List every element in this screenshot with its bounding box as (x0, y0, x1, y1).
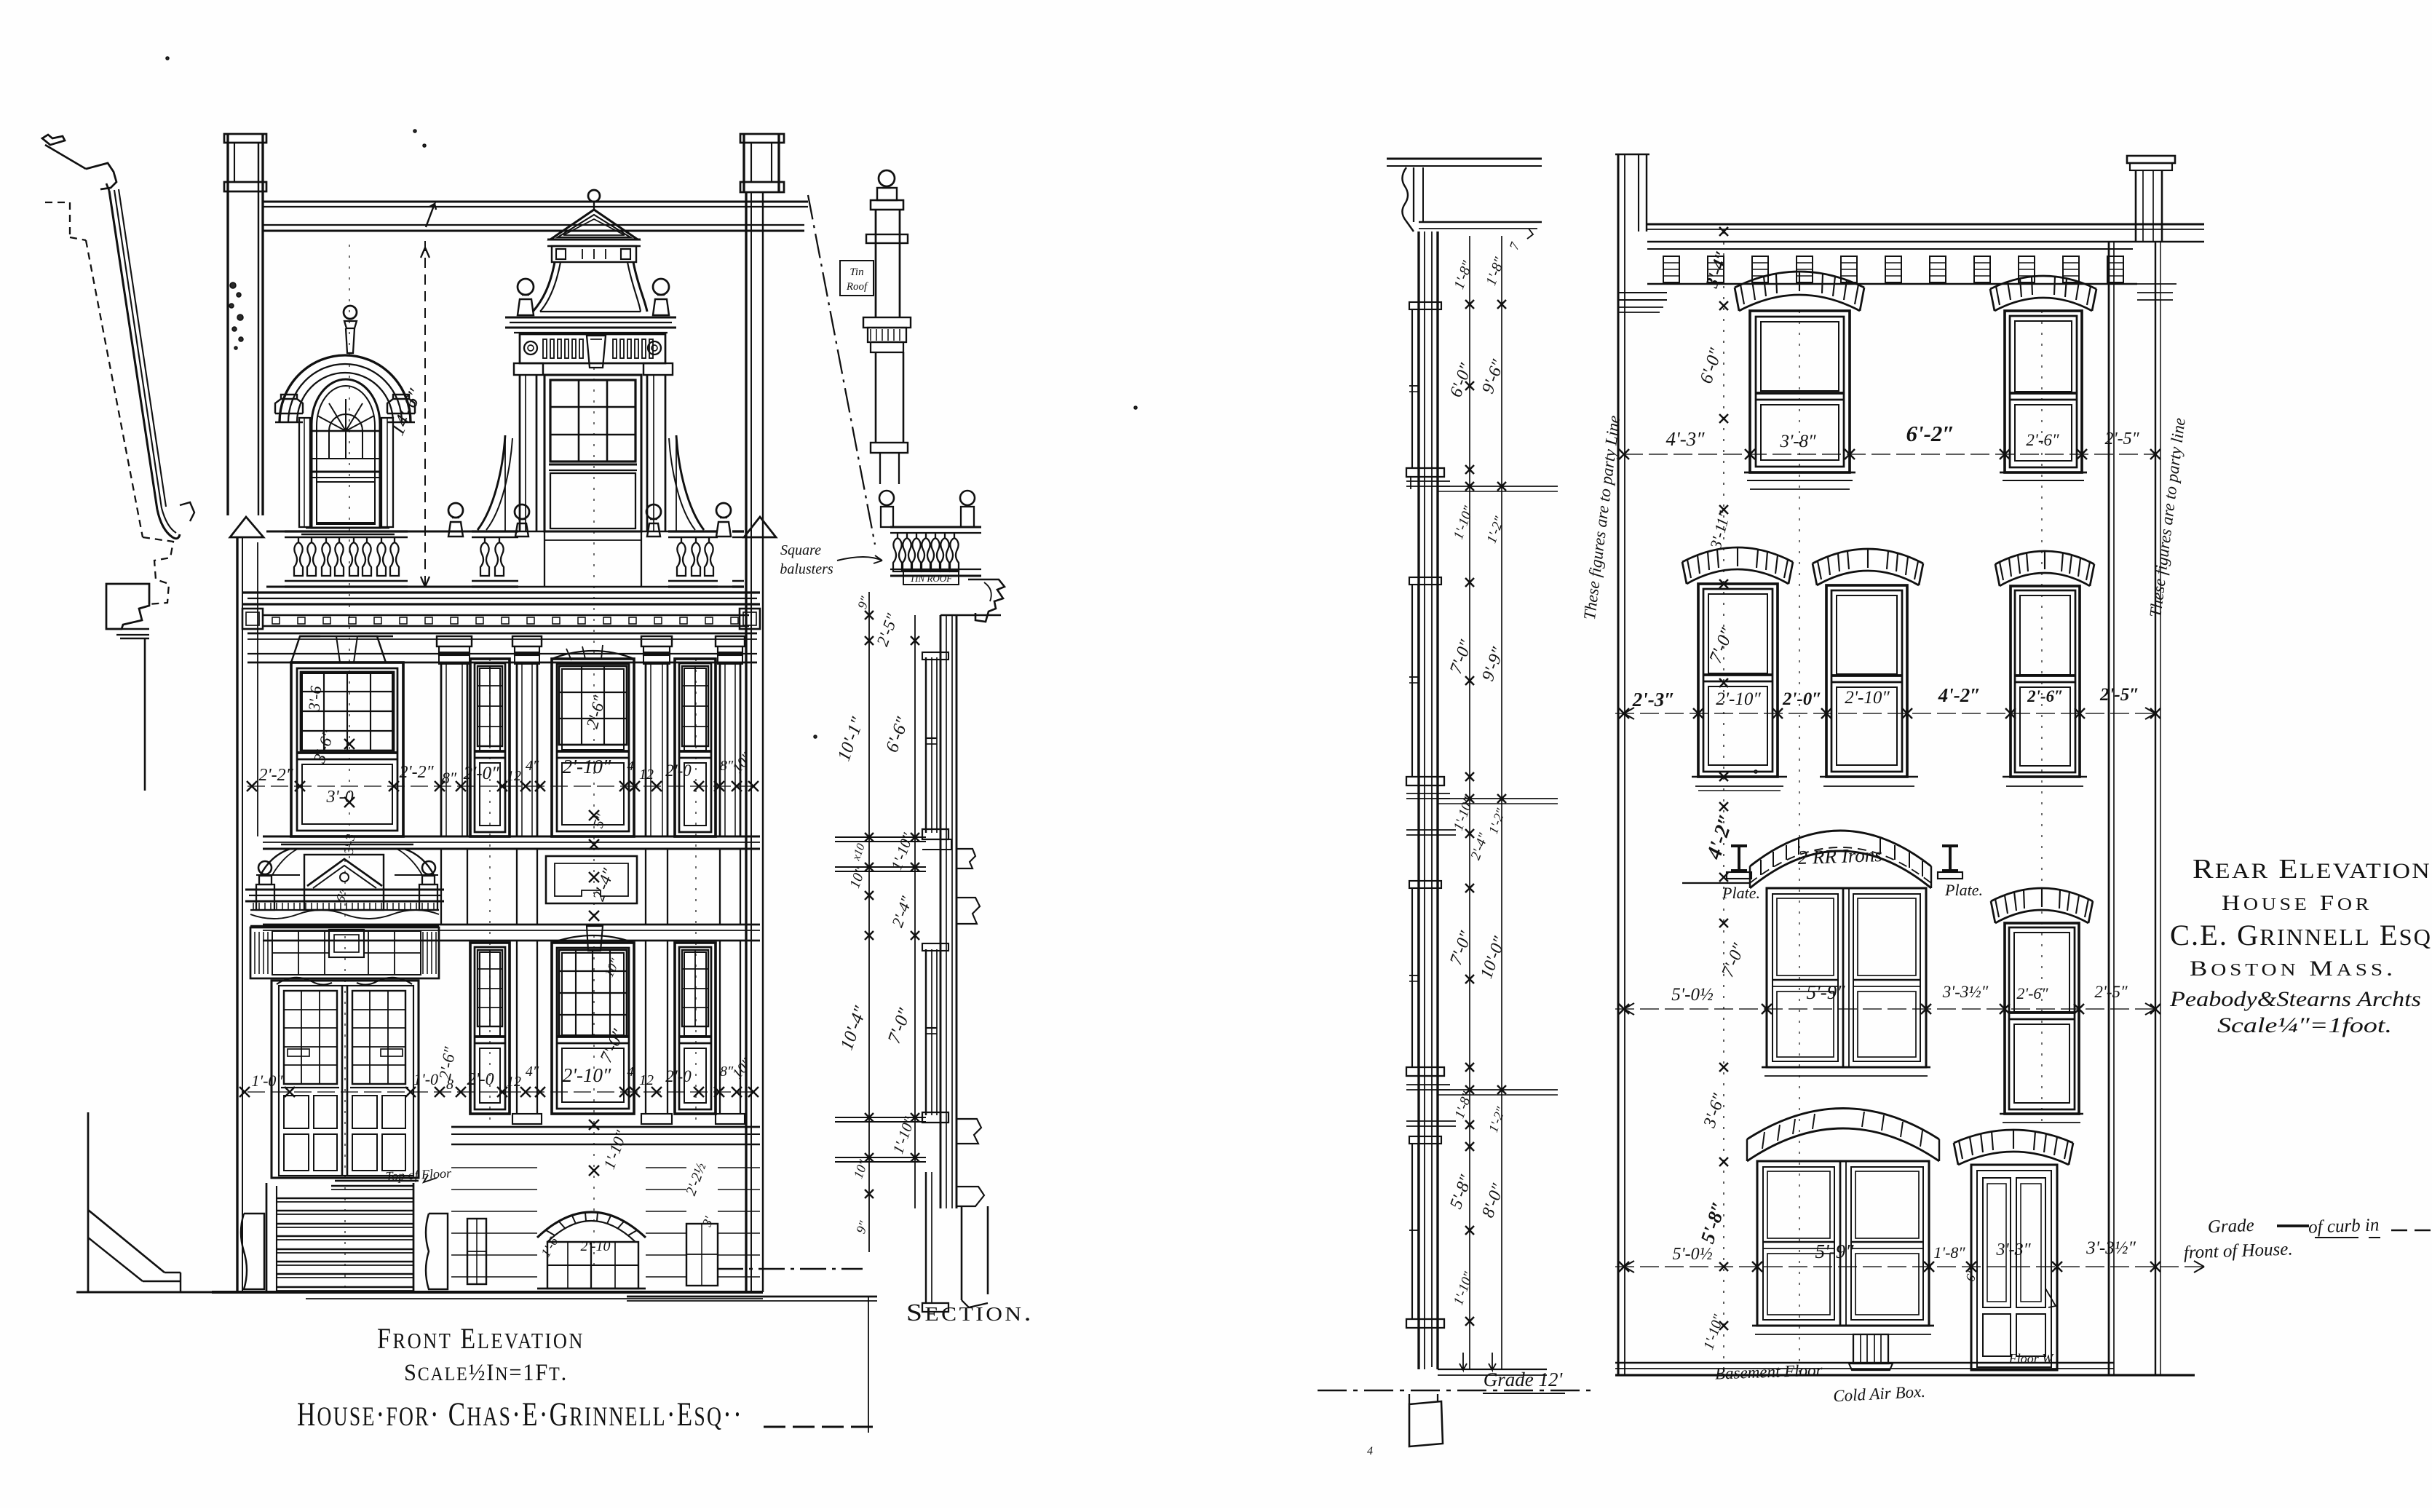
svg-text:3'-6: 3'-6 (305, 685, 325, 712)
svg-text:2'-3″: 2'-3″ (1632, 689, 1675, 711)
svg-text:Scale¼″=1foot.: Scale¼″=1foot. (2217, 1013, 2392, 1037)
svg-text:2'-0″: 2'-0″ (1782, 689, 1822, 709)
svg-text:Grade 12': Grade 12' (1484, 1369, 1564, 1390)
svg-text:2'-10″: 2'-10″ (563, 1064, 611, 1086)
svg-text:Plate.: Plate. (1722, 884, 1760, 902)
svg-text:2'-10″: 2'-10″ (563, 756, 611, 777)
svg-text:2'-0: 2'-0 (665, 1067, 692, 1085)
svg-text:12: 12 (639, 1072, 654, 1088)
svg-text:12: 12 (507, 1074, 521, 1090)
svg-text:4: 4 (1367, 1445, 1373, 1457)
svg-text:3'-3½″: 3'-3½″ (2086, 1238, 2136, 1258)
svg-text:2'-5″: 2'-5″ (2094, 983, 2128, 1001)
svg-text:of curb in: of curb in (2308, 1215, 2380, 1237)
svg-text:2'-5″: 2'-5″ (2104, 430, 2139, 448)
svg-text:3'-8″: 3'-8″ (1779, 432, 1816, 451)
svg-text:8″: 8″ (442, 769, 457, 787)
svg-text:2'-2″: 2'-2″ (258, 766, 293, 785)
svg-text:4'-2″: 4'-2″ (1938, 684, 1981, 706)
svg-text:4″: 4″ (526, 1064, 539, 1080)
svg-text:Peabody&Stearns Archts: Peabody&Stearns Archts (2169, 987, 2421, 1011)
svg-text:REAR ELEVATION: REAR ELEVATION (2193, 854, 2431, 884)
svg-text:Basement Floor: Basement Floor (1715, 1361, 1823, 1382)
svg-text:Tin: Tin (849, 266, 863, 278)
svg-text:2'-5″: 2'-5″ (2099, 685, 2139, 705)
svg-text:1'-0: 1'-0 (413, 1070, 438, 1088)
svg-text:5'-0½: 5'-0½ (1672, 1245, 1712, 1264)
svg-text:Grade: Grade (2207, 1216, 2254, 1237)
svg-text:5'-0½: 5'-0½ (1671, 985, 1714, 1005)
svg-text:4: 4 (627, 1064, 634, 1079)
svg-text:1'-8″: 1'-8″ (1933, 1243, 1965, 1262)
svg-text:Plate.: Plate. (1944, 881, 1983, 899)
svg-text:3'-3: 3'-3 (341, 834, 357, 855)
svg-text:12: 12 (639, 767, 654, 783)
svg-text:2'-0: 2'-0 (467, 1070, 494, 1089)
svg-text:6'-2″: 6'-2″ (1906, 421, 1954, 446)
svg-text:SECTION.: SECTION. (906, 1299, 1034, 1326)
svg-text:2'-10″: 2'-10″ (1845, 688, 1890, 708)
svg-text:12: 12 (507, 768, 521, 784)
svg-text:3'-0: 3'-0 (325, 788, 353, 807)
svg-text:2'-6″: 2'-6″ (2027, 687, 2064, 705)
svg-text:balusters: balusters (780, 561, 833, 577)
svg-text:5'-9″: 5'-9″ (1806, 981, 1845, 1003)
svg-text:Square: Square (780, 542, 821, 558)
svg-text:C.E. GRINNELL ESQ: C.E. GRINNELL ESQ (2170, 919, 2432, 951)
svg-text:4'-3″: 4'-3″ (1665, 428, 1705, 450)
svg-text:3'-3″: 3'-3″ (1995, 1240, 2031, 1259)
svg-text:2'-6″: 2'-6″ (2016, 984, 2048, 1002)
svg-text:2'-10″: 2'-10″ (1716, 689, 1761, 709)
svg-text:SCALE½IN=1FT.: SCALE½IN=1FT. (404, 1360, 568, 1386)
svg-text:2'-2″: 2'-2″ (399, 763, 434, 782)
svg-text:Roof: Roof (846, 281, 868, 293)
svg-text:4: 4 (627, 759, 634, 773)
svg-text:2 RR Irons: 2 RR Irons (1797, 844, 1882, 868)
svg-text:2'-10: 2'-10 (581, 1238, 611, 1254)
svg-text:5'-9″: 5'-9″ (1815, 1240, 1854, 1262)
svg-text:1'-0″: 1'-0″ (251, 1072, 283, 1090)
svg-text:4″: 4″ (526, 758, 539, 774)
svg-text:3'-3½″: 3'-3½″ (1942, 983, 1989, 1001)
svg-text:front of House.: front of House. (2183, 1239, 2293, 1262)
svg-text:TIN ROOF: TIN ROOF (910, 573, 953, 584)
svg-text:2'-0: 2'-0 (665, 761, 692, 780)
svg-text:2'-0″: 2'-0″ (463, 764, 499, 783)
svg-text:2'-6″: 2'-6″ (2026, 431, 2059, 449)
